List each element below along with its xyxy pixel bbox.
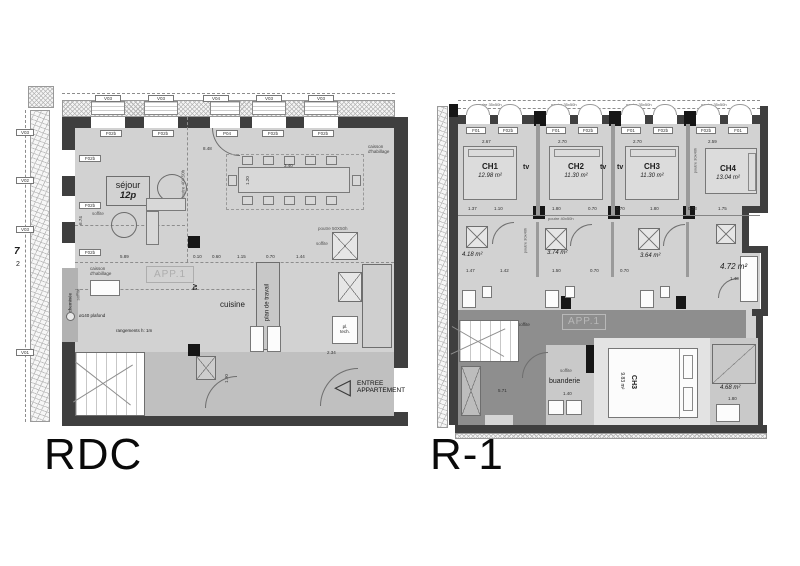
window-opening [696,115,720,124]
tv-label: tv [600,164,606,172]
dimension-label: 0.73 [688,206,697,211]
soffit-label: soffite [518,322,530,327]
bedroom-label: CH4 [708,164,748,173]
bed [712,344,756,384]
tv-label: tv [523,164,529,172]
partition-wall [458,215,760,216]
column [676,296,686,309]
apartment-tag: APP.1 [562,314,606,330]
dimension-label: 1.37 [468,206,477,211]
shower [545,228,567,250]
dimension-label: 1.75 [718,206,727,211]
opening-tag: F02b [696,127,716,134]
bath-fixture [462,290,476,308]
window-swing-arc [728,104,752,115]
plan-title-r1: R-1 [430,430,504,480]
opening-tag: F01 [546,127,566,134]
room-area: 4.68 m² [720,385,740,392]
pillow [554,149,600,157]
opening-tag: F01 [621,127,641,134]
dimension-label: 1.80 [552,206,561,211]
window-opening [498,115,522,124]
wall-left [449,112,458,425]
stair-winder-line [451,328,506,354]
facade-hatch-left [437,106,448,428]
floorplan-sheet: V03 V03 V04 V03 V03 V03 V02 V03 V01 7 2 … [0,0,800,566]
dimension-label: 2.59 [708,139,717,144]
dimension-label: 0.70 [590,268,599,273]
bedroom-area: 12.98 m² [470,173,510,180]
dimension-label: 1.42 [500,268,509,273]
window-opening [728,115,752,124]
window-swing-arc [578,104,602,115]
bath-area: 3.74 m² [547,250,567,257]
opening-tag: F02b [498,127,518,134]
bath-fixture [640,290,654,308]
wall-step [742,246,768,253]
pillow [748,153,756,191]
window-opening [653,115,677,124]
opening-tag: F01 [728,127,748,134]
pillow [683,355,693,379]
bedroom-area: 9.83 m² [618,366,624,396]
partition-wall [611,222,614,277]
shower [466,226,488,248]
wall-step [742,213,749,249]
window-opening [578,115,602,124]
bedroom-label: CH2 [556,162,596,171]
opening-tag: F01 [466,127,486,134]
bath-fixture [660,286,670,298]
dimension-label: 1.80 [650,206,659,211]
facade-notch [749,213,769,247]
opening-tag: F02b [653,127,673,134]
window-opening [546,115,570,124]
wall-right [760,106,768,212]
dimension-label: 1.10 [494,206,503,211]
beam-label: poutre 30x40h [522,228,527,254]
wall-segment [586,345,594,373]
partition-wall [536,124,540,215]
opening-tag: F02b [578,127,598,134]
beam-label: poutre 40x50h [548,216,574,221]
dimension-label: 0.70 [616,206,625,211]
dimension-label: 1.40 [563,391,572,396]
shower [716,224,736,244]
window-opening [466,115,490,124]
tv-label: tv [617,164,623,172]
bath-fixture [482,286,492,298]
plan-r1: poutre 35x50h poutre 35x50h poutre 35x50… [0,0,800,566]
threshold [485,415,513,425]
dimension-label: 1.40 [730,276,739,281]
washing-machine [548,400,564,415]
dryer [566,400,582,415]
dimension-label: 2.70 [558,139,567,144]
wall-step [752,309,768,316]
partition-wall [611,124,615,215]
dimension-label: 2.67 [482,139,491,144]
partition-wall [686,222,689,277]
bedroom-label: CH3 [629,367,637,397]
furniture [716,404,740,422]
partition-wall [686,124,690,215]
bedroom-area: 13.04 m² [708,175,748,182]
pillow [468,149,514,157]
pillow [683,387,693,411]
dimension-label: 1.47 [466,268,475,273]
bath-fixture [565,286,575,298]
shower [638,228,660,250]
window-swing-arc [653,104,677,115]
bath-area: 4.18 m² [462,252,482,259]
headboard-line [679,349,680,419]
dimension-label: 0.70 [588,206,597,211]
wall-step [761,253,768,311]
window-swing-arc [498,104,522,115]
bedroom-area: 11.30 m² [556,173,596,180]
soffit-label: soffite [560,368,572,373]
bedroom-label: CH3 [632,162,672,171]
dimension-label: 2.70 [633,139,642,144]
bath-fixture [545,290,559,308]
staircase [459,320,519,362]
buanderie-label: buanderie [549,378,580,386]
beam-label: poutre 30x40h [692,148,697,174]
dimension-label: 1.50 [552,268,561,273]
bath-area: 3.64 m² [640,253,660,260]
partition-wall [536,222,539,277]
dimension-label: 1.80 [728,396,737,401]
dimension-label: 5.71 [498,388,507,393]
window-opening [621,115,645,124]
technical-shaft [461,366,481,416]
dimension-label: 0.70 [620,268,629,273]
wall-step [742,206,768,213]
bath-area: 4.72 m² [720,262,747,271]
column [449,104,458,117]
pillow [630,149,676,157]
dimension-line [458,100,760,101]
bedroom-area: 11.30 m² [632,173,672,180]
bedroom-label: CH1 [470,162,510,171]
